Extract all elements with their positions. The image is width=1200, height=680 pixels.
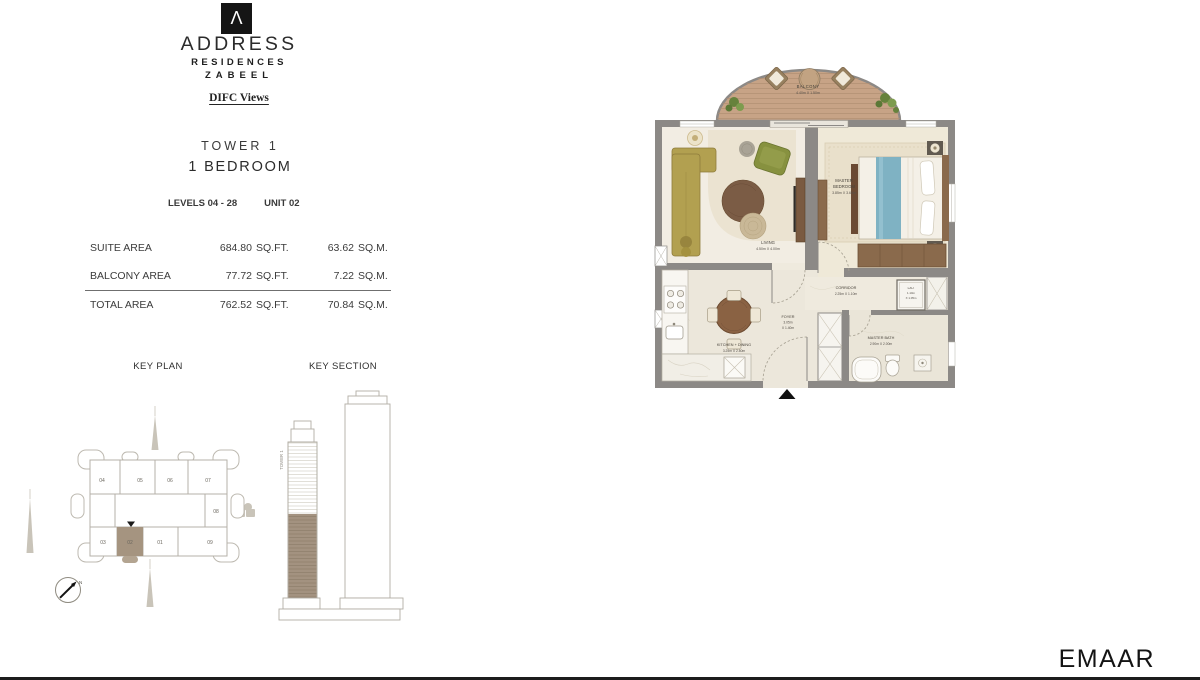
bed-icon bbox=[859, 155, 949, 241]
brand-logo-letter: Λ bbox=[230, 8, 242, 28]
area-row-total: TOTAL AREA 762.52 SQ.FT. 70.84 SQ.M. bbox=[85, 290, 391, 319]
tv-console-icon bbox=[796, 178, 805, 242]
balcony: BALCONY 4.40m X 1.50m bbox=[717, 66, 900, 121]
foyer-dims-1: 3.05m bbox=[783, 321, 792, 325]
pouf-icon bbox=[739, 141, 755, 157]
area-row-suite: SUITE AREA 684.80 SQ.FT. 63.62 SQ.M. bbox=[85, 234, 391, 262]
tower-1-elevation: TOWER 1 bbox=[279, 421, 317, 598]
balcony-label: BALCONY bbox=[797, 84, 820, 89]
tv-icon bbox=[794, 186, 796, 232]
emaar-logo: EMAAR bbox=[1030, 645, 1155, 674]
stove-icon bbox=[664, 286, 686, 313]
area-label: SUITE AREA bbox=[90, 242, 202, 254]
vanity-icon bbox=[914, 355, 931, 371]
laundry-dims-1: 1.10m bbox=[907, 291, 916, 295]
unit-03: 03 bbox=[100, 540, 106, 546]
unit-08: 08 bbox=[213, 509, 219, 515]
laundry-dims-2: X 1.05m bbox=[906, 296, 917, 300]
unit-04: 04 bbox=[99, 478, 105, 484]
foyer-closet-icon bbox=[818, 313, 842, 381]
area-sqft-unit: SQ.FT. bbox=[252, 299, 290, 311]
bath-label: MASTER BATH bbox=[868, 336, 895, 340]
area-sqm-unit: SQ.M. bbox=[354, 299, 392, 311]
corridor-floor bbox=[805, 277, 948, 310]
unit-02: 02 bbox=[127, 540, 133, 546]
opening-living-foyer bbox=[772, 263, 805, 270]
laundry-label: LAU. bbox=[908, 286, 915, 290]
bedroom-label-1: MASTER bbox=[835, 178, 852, 183]
kitchen-label: KITCHEN + DINING bbox=[717, 343, 751, 347]
bed-bench-icon bbox=[851, 164, 858, 234]
opening-entry bbox=[763, 381, 808, 388]
bedroom-label-2: BEDROOM bbox=[833, 184, 855, 189]
unit-05: 05 bbox=[137, 478, 143, 484]
area-table: SUITE AREA 684.80 SQ.FT. 63.62 SQ.M. BAL… bbox=[85, 234, 391, 319]
tower-2-elevation bbox=[345, 391, 390, 598]
laundry-closet: LAU. 1.10m X 1.05m bbox=[897, 280, 925, 310]
area-sqm-unit: SQ.M. bbox=[354, 270, 392, 282]
key-plan-diagram: 04 05 06 07 08 03 02 01 09 N bbox=[10, 395, 265, 620]
corridor-label: CORRIDOR bbox=[836, 286, 857, 290]
balcony-dims: 4.40m X 1.50m bbox=[796, 91, 820, 95]
key-plan-title: KEY PLAN bbox=[118, 361, 198, 372]
bath-dims: 2.90m X 2.00m bbox=[870, 342, 893, 346]
levels-label: LEVELS 04 - 28 bbox=[168, 198, 237, 209]
brand-subtitle-zabeel: ZABEEL bbox=[150, 70, 328, 81]
tower-title: TOWER 1 bbox=[152, 139, 328, 153]
bedroom-dims: 3.85m X 3.60m bbox=[832, 191, 856, 195]
living-dims: 4.50m X 4.00m bbox=[756, 247, 780, 251]
dresser-icon bbox=[818, 180, 827, 240]
area-sqft-unit: SQ.FT. bbox=[252, 270, 290, 282]
key-section-title: KEY SECTION bbox=[299, 361, 387, 372]
unit-01: 01 bbox=[157, 540, 163, 546]
unit-number-label: UNIT 02 bbox=[264, 198, 299, 209]
balcony-sliding-door bbox=[770, 121, 848, 128]
brand-logo-icon: Λ bbox=[221, 3, 252, 34]
podium-base bbox=[279, 598, 403, 620]
unit-06: 06 bbox=[167, 478, 173, 484]
living-room: LIVING 4.50m X 4.00m bbox=[672, 130, 805, 257]
area-sqm-value: 63.62 bbox=[290, 242, 354, 254]
highlighted-unit-balcony bbox=[122, 556, 138, 563]
floor-lamp-core bbox=[692, 135, 698, 141]
kitchen-dims: 3.25m X 2.80m bbox=[723, 349, 746, 353]
area-sqm-value: 7.22 bbox=[290, 270, 354, 282]
appliance-icon bbox=[724, 357, 745, 378]
area-sqft-unit: SQ.FT. bbox=[252, 242, 290, 254]
corridor-dims: 2.25m X 1.10m bbox=[835, 292, 858, 296]
unit-type-title: 1 BEDROOM bbox=[152, 159, 328, 175]
area-sqft-value: 77.72 bbox=[202, 270, 252, 282]
area-label: BALCONY AREA bbox=[90, 270, 202, 282]
key-section-diagram: TOWER 1 bbox=[272, 390, 404, 630]
foyer-dims-2: X 1.40m bbox=[782, 326, 795, 330]
opening-bedroom-door bbox=[818, 268, 844, 277]
bathtub-icon bbox=[852, 357, 881, 382]
area-label: TOTAL AREA bbox=[90, 299, 202, 311]
foyer-label: FOYER bbox=[781, 315, 794, 319]
unit-07: 07 bbox=[205, 478, 211, 484]
living-label: LIVING bbox=[761, 240, 775, 245]
north-arrow-icon: N bbox=[56, 578, 83, 603]
page: Λ ADDRESS RESIDENCES ZABEEL DIFC Views T… bbox=[0, 0, 1200, 680]
levels-unit-row: LEVELS 04 - 28 UNIT 02 bbox=[168, 198, 328, 209]
unit-09: 09 bbox=[207, 540, 213, 546]
area-sqft-value: 684.80 bbox=[202, 242, 252, 254]
opening-bath-door bbox=[849, 310, 871, 315]
area-sqm-value: 70.84 bbox=[290, 299, 354, 311]
toilet-icon bbox=[886, 355, 900, 376]
north-label: N bbox=[79, 580, 82, 585]
area-row-balcony: BALCONY AREA 77.72 SQ.FT. 7.22 SQ.M. bbox=[85, 262, 391, 290]
brand-tagline: DIFC Views bbox=[150, 92, 328, 104]
area-sqft-value: 762.52 bbox=[202, 299, 252, 311]
floor-plan: BALCONY 4.40m X 1.50m bbox=[650, 58, 966, 403]
brand-subtitle-residences: RESIDENCES bbox=[150, 57, 328, 68]
wardrobe-icon bbox=[858, 244, 946, 267]
entry-marker-icon bbox=[779, 389, 796, 399]
brand-name: ADDRESS bbox=[150, 33, 328, 56]
area-sqm-unit: SQ.M. bbox=[354, 242, 392, 254]
closet-icon bbox=[927, 277, 947, 310]
tower-1-label: TOWER 1 bbox=[279, 450, 284, 470]
